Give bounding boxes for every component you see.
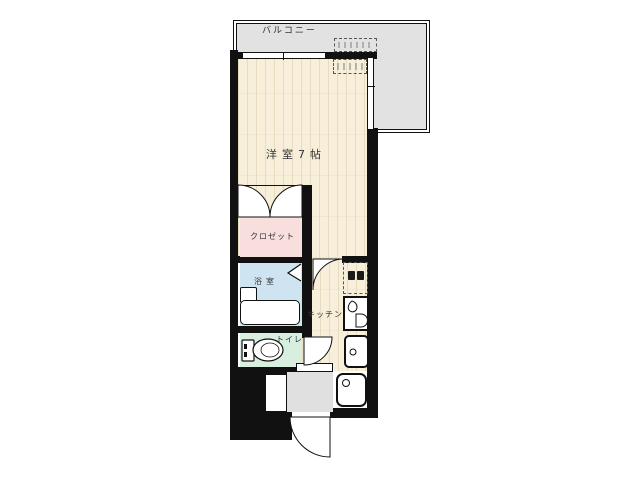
closet-label: クロゼット	[250, 233, 295, 241]
room-label: 洋室7帖	[266, 149, 326, 160]
bath-folding-door-icon	[288, 264, 301, 281]
toilet-door-swing-icon	[304, 337, 332, 365]
closet-door-right-icon	[270, 185, 302, 217]
washing-machine-pan-icon	[337, 374, 366, 406]
bath-label: 浴室	[254, 278, 278, 286]
kitchen-sink-icon	[344, 297, 368, 330]
kitchen-label: キッチン	[307, 311, 343, 319]
plan-drawing-layer	[0, 0, 640, 480]
floorplan-canvas: バルコニー 洋室7帖 クロゼット 浴室 キッチン トイレ	[0, 0, 640, 480]
toilet-label: トイレ	[276, 336, 303, 344]
entrance-door-swing-icon	[290, 417, 330, 457]
balcony-label: バルコニー	[262, 27, 317, 36]
equipment-mark-icon	[348, 271, 364, 280]
closet-door-left-icon	[238, 185, 270, 217]
kitchen-door-swing-icon	[313, 259, 344, 290]
kitchen-unit-icon	[345, 336, 368, 367]
